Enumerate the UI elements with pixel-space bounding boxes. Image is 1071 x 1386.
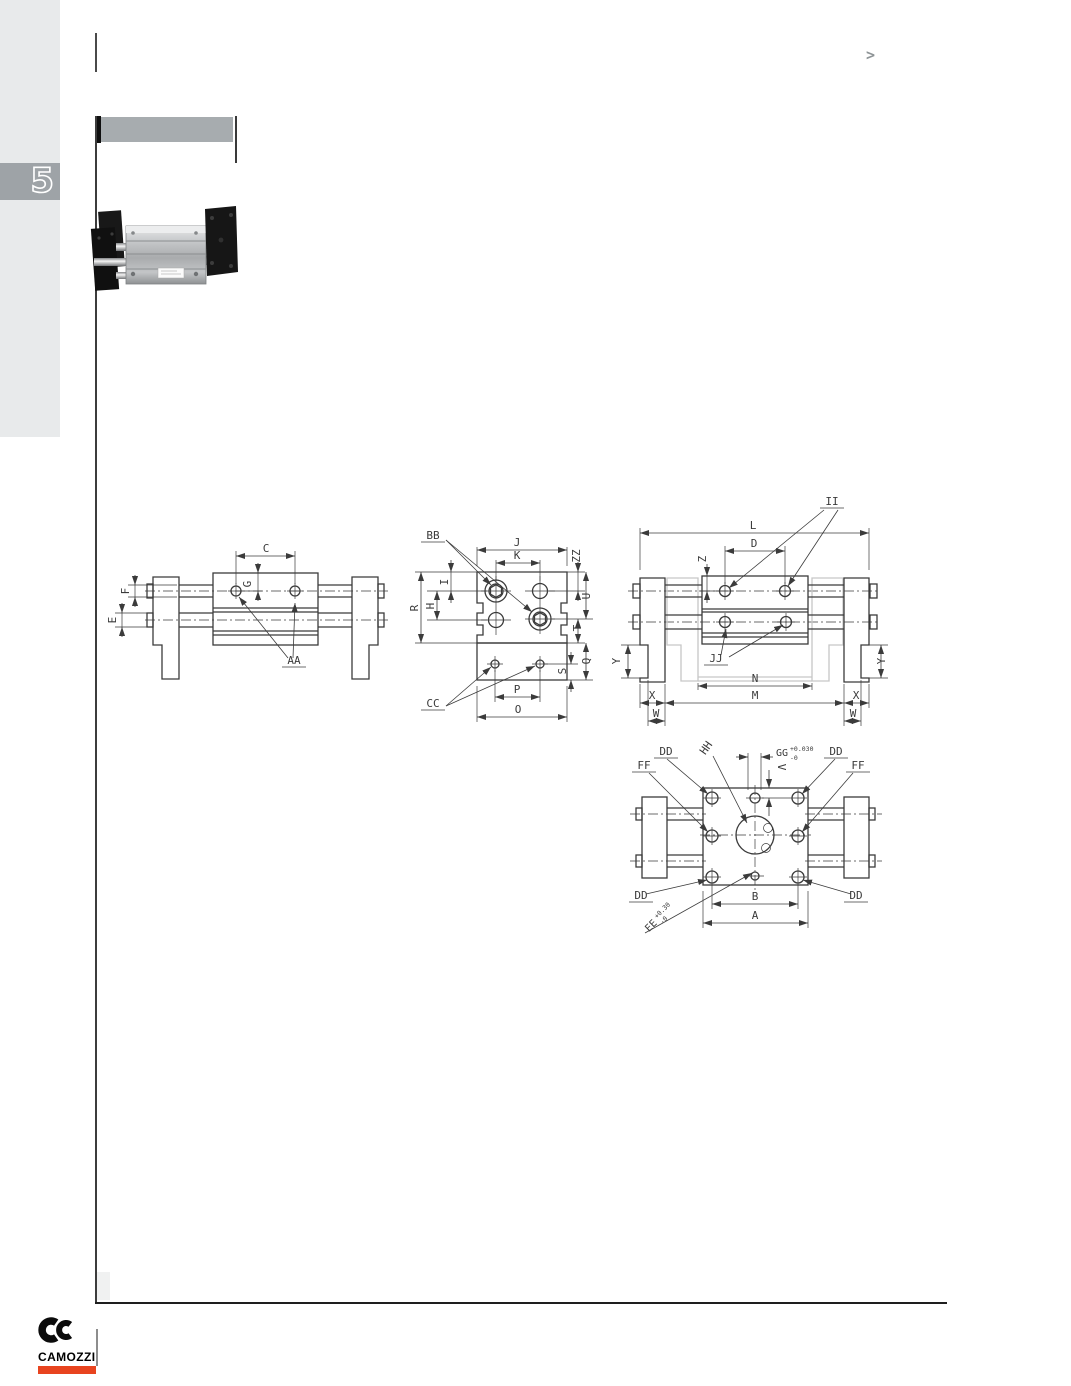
dim-label-z: Z — [696, 555, 709, 562]
dim-label-g: G — [241, 581, 254, 588]
dim-label-k: K — [514, 549, 521, 562]
dim-label-n: N — [752, 672, 759, 685]
dim-label-a: A — [752, 909, 759, 922]
drawing-end-view: J K ZZ U T Q S — [408, 529, 593, 722]
dim-label-b: B — [752, 890, 759, 903]
product-photo — [91, 206, 238, 291]
dim-label-x-right: X — [853, 689, 860, 702]
dim-label-w-right: W — [850, 707, 857, 720]
drawings-overlay: C G F E AA — [0, 0, 1071, 1386]
dim-label-gg: GG — [776, 748, 788, 759]
dim-label-i: I — [438, 579, 451, 586]
dim-label-j: J — [514, 536, 521, 549]
dim-label-y-right: Y — [875, 657, 888, 664]
callout-label-aa: AA — [287, 654, 301, 667]
dim-label-y-left: Y — [610, 657, 623, 664]
dim-label-t: T — [571, 624, 584, 631]
dim-label-zz: ZZ — [570, 549, 583, 563]
callout-label-jj: JJ — [709, 652, 722, 665]
dim-label-u: U — [580, 593, 593, 600]
brand-logo-mark-icon — [38, 1316, 78, 1346]
callout-label-ii: II — [825, 495, 838, 508]
dim-label-f: F — [119, 588, 132, 595]
callout-label-dd-tl: DD — [659, 745, 672, 758]
footer-gray-square — [97, 1272, 110, 1300]
dim-label-d: D — [751, 537, 758, 550]
drawing-open-view: L D Z II JJ Y Y — [610, 495, 888, 726]
dim-label-o: O — [515, 703, 522, 716]
brand-name: CAMOZZI — [38, 1350, 100, 1364]
dim-label-gg-tol-lower: -0 — [790, 754, 798, 762]
dim-label-x-left: X — [649, 689, 656, 702]
brand-logo: CAMOZZI — [38, 1316, 100, 1374]
callout-label-dd-bl: DD — [634, 889, 647, 902]
callout-label-dd-tr: DD — [829, 745, 842, 758]
dim-label-r: R — [408, 604, 421, 611]
callout-label-bb: BB — [426, 529, 440, 542]
dim-label-q: Q — [580, 658, 593, 665]
dim-label-p: P — [514, 683, 521, 696]
catalog-page: 5 > — [0, 0, 1071, 1386]
dim-label-c: C — [263, 542, 270, 555]
dim-label-gg-tol-upper: +0.030 — [790, 745, 814, 753]
dim-label-s: S — [556, 668, 569, 675]
callout-label-ff-left: FF — [637, 759, 650, 772]
drawing-face-view: DD DD DD DD FF FF HH GG — [629, 739, 882, 937]
dim-label-w-left: W — [653, 707, 660, 720]
callout-label-ff-right: FF — [851, 759, 864, 772]
footer-rule — [95, 1302, 947, 1304]
dim-label-l: L — [750, 519, 757, 532]
logo-divider-line — [96, 1329, 98, 1366]
callout-label-cc: CC — [426, 697, 439, 710]
dim-label-m: M — [752, 689, 759, 702]
dim-label-e: E — [106, 617, 119, 624]
callout-label-hh: HH — [697, 739, 715, 757]
dim-label-v: V — [775, 764, 788, 771]
dim-label-h: H — [424, 603, 437, 610]
callout-label-dd-br: DD — [849, 889, 862, 902]
drawing-side-view: C G F E AA — [106, 542, 388, 679]
brand-red-bar — [38, 1366, 96, 1374]
